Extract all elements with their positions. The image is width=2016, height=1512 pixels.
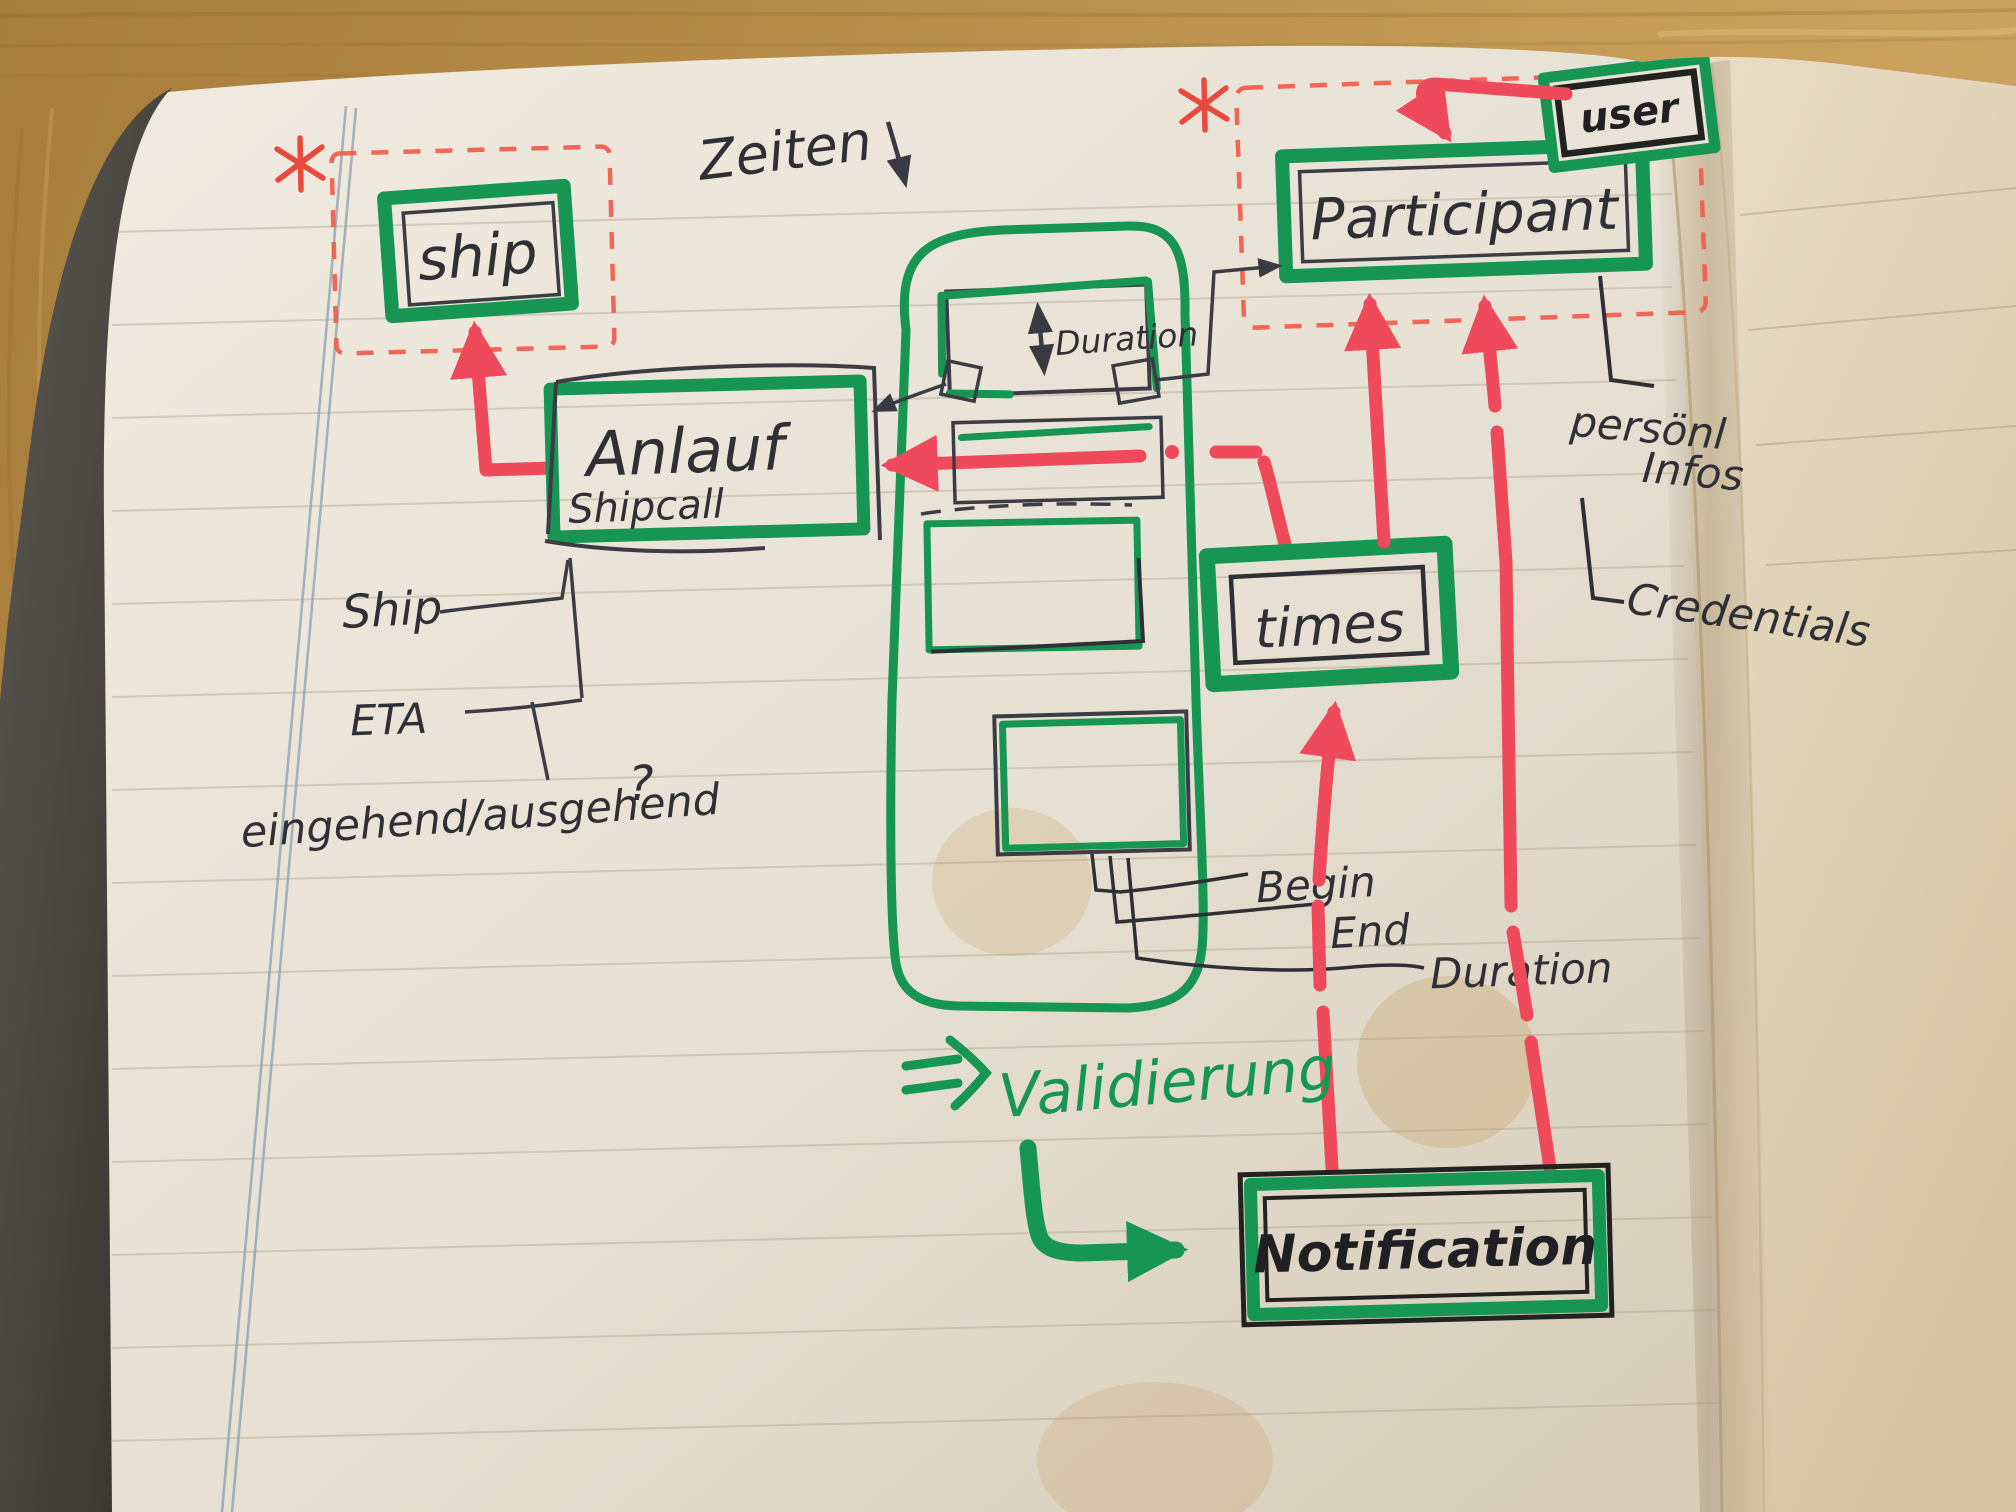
ship-label: ship: [415, 218, 539, 294]
times-label: times: [1253, 590, 1406, 661]
persoenl-attribute-line2: Infos: [1640, 443, 1745, 501]
inout-question-mark: ?: [628, 756, 653, 812]
end-attribute: End: [1329, 905, 1412, 958]
notification-label: Notification: [1252, 1217, 1598, 1286]
ship-attribute: Ship: [341, 580, 444, 639]
sketch-diagram-canvas: ship Zeiten Participant user: [0, 0, 2016, 1512]
shipcall-label: Shipcall: [567, 481, 724, 532]
notebook-photo: ship Zeiten Participant user: [0, 0, 2016, 1512]
participant-label: Participant: [1309, 177, 1621, 254]
user-entity-box: user: [1543, 58, 1715, 167]
eta-attribute: ETA: [349, 694, 428, 746]
anlauf-label: Anlauf: [581, 411, 794, 491]
